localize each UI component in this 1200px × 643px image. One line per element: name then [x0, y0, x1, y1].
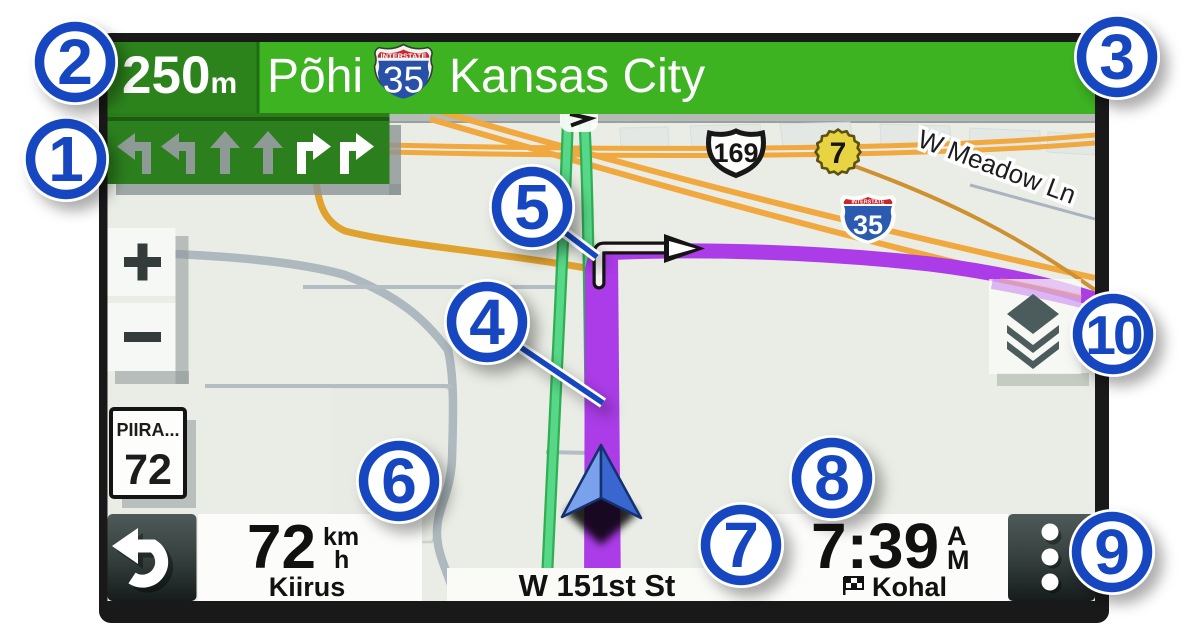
svg-text:2: 2 [57, 26, 93, 98]
svg-text:3: 3 [1099, 21, 1135, 93]
svg-text:h: h [334, 546, 349, 574]
svg-text:10: 10 [1085, 304, 1142, 366]
svg-text:7: 7 [723, 509, 759, 581]
svg-text:5: 5 [514, 171, 550, 243]
svg-text:8: 8 [814, 442, 850, 514]
svg-text:INTERSTATE: INTERSTATE [851, 200, 884, 206]
svg-text:9: 9 [1094, 516, 1130, 588]
svg-text:W 151st St: W 151st St [519, 568, 676, 603]
svg-text:7: 7 [830, 137, 847, 170]
svg-text:1: 1 [48, 123, 84, 195]
svg-text:Kiirus: Kiirus [269, 572, 346, 602]
svg-text:169: 169 [713, 138, 758, 168]
svg-text:PIIRA...: PIIRA... [116, 420, 179, 440]
svg-text:35: 35 [853, 210, 883, 240]
svg-text:Kohal: Kohal [872, 572, 947, 602]
svg-text:72: 72 [124, 446, 172, 494]
svg-text:Kansas City: Kansas City [449, 50, 705, 103]
svg-text:Põhi: Põhi [267, 50, 363, 103]
svg-text:6: 6 [381, 445, 417, 517]
svg-text:35: 35 [383, 60, 424, 101]
svg-text:4: 4 [469, 286, 505, 358]
svg-text:M: M [947, 545, 970, 575]
